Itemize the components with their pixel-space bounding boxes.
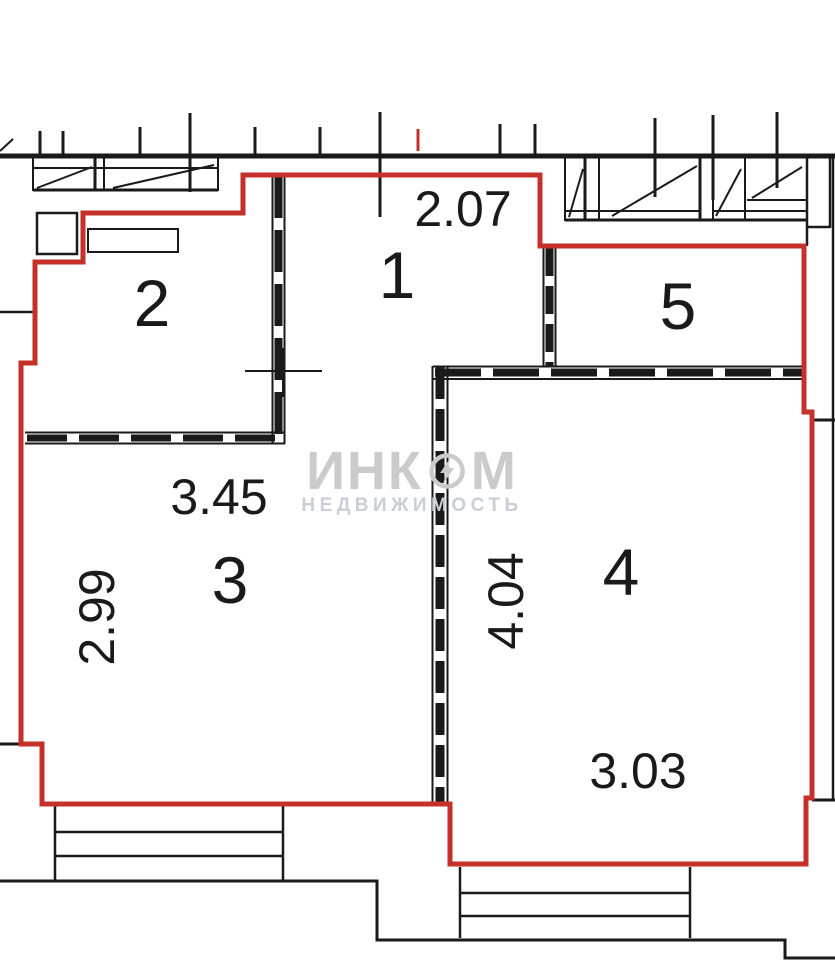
dim-room3-width: 3.45 bbox=[170, 472, 267, 522]
watermark-brand-right: М bbox=[471, 440, 518, 502]
floor-plan: ИНК М НЕДВИЖИМОСТЬ 1 2 3 4 5 2.07 3.45 2… bbox=[0, 0, 835, 960]
cross-mark bbox=[245, 348, 322, 397]
dim-room4-depth: 4.04 bbox=[481, 552, 531, 649]
room-4-label: 4 bbox=[603, 539, 640, 605]
balcony-left bbox=[55, 806, 283, 880]
room-3-label: 3 bbox=[212, 547, 249, 613]
watermark-logo-icon bbox=[427, 451, 467, 491]
building-edges bbox=[0, 156, 835, 958]
room-2-label: 2 bbox=[134, 270, 171, 336]
wall-room2-bottom bbox=[25, 433, 285, 444]
wall-room1-room5 bbox=[544, 247, 556, 367]
fixture-rect bbox=[88, 229, 178, 252]
watermark-brand: ИНК М bbox=[306, 440, 518, 502]
room-1-label: 1 bbox=[379, 242, 416, 308]
wall-room2-room1 bbox=[273, 175, 285, 444]
wall-room5-bottom bbox=[433, 367, 804, 380]
room-5-label: 5 bbox=[660, 273, 697, 339]
right-window-block bbox=[565, 157, 830, 246]
dim-room4-width: 3.03 bbox=[589, 746, 686, 796]
dim-room1-width: 2.07 bbox=[414, 184, 511, 234]
balcony-right bbox=[460, 867, 690, 938]
wall-room4-left bbox=[433, 366, 448, 804]
wall-ticks bbox=[0, 112, 777, 217]
dim-room3-depth: 2.99 bbox=[72, 568, 122, 665]
watermark-subtitle: НЕДВИЖИМОСТЬ bbox=[301, 495, 522, 517]
fixture-square bbox=[37, 213, 77, 254]
watermark-brand-left: ИНК bbox=[306, 440, 423, 502]
